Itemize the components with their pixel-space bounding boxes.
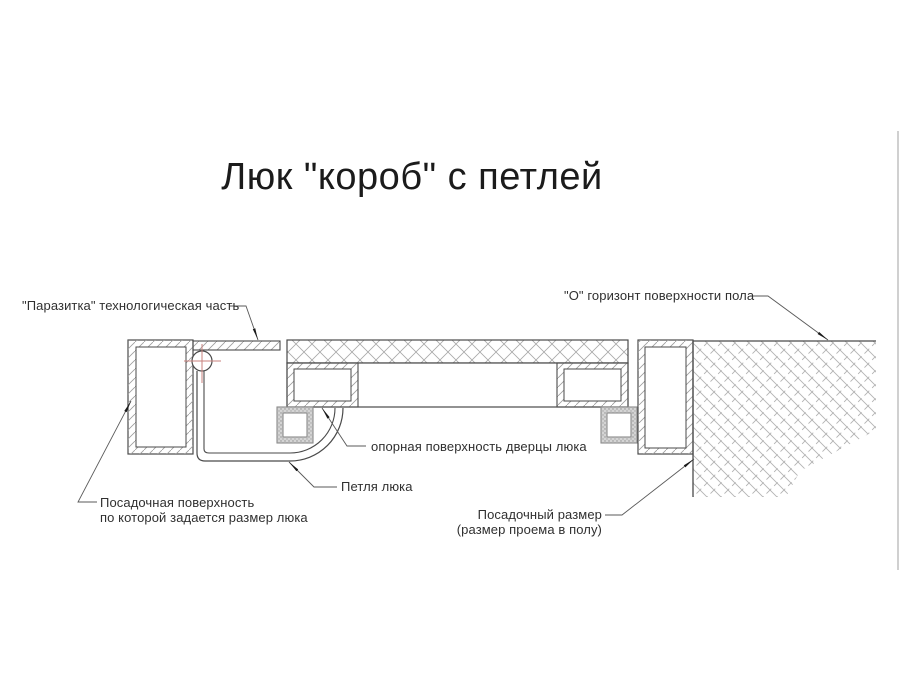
technical-drawing-canvas bbox=[0, 0, 900, 700]
leader-seating-surface bbox=[78, 401, 131, 502]
label-seating-size: Посадочный размер (размер проема в полу) bbox=[432, 507, 602, 537]
right-seal-profile bbox=[601, 407, 637, 443]
label-seating-surface-line1: Посадочная поверхность bbox=[100, 495, 308, 510]
label-support-surface: опорная поверхность дверцы люка bbox=[371, 439, 587, 454]
leader-seating-size bbox=[605, 459, 694, 515]
page-title: Люк "короб" с петлей bbox=[0, 156, 824, 199]
door-left-profile bbox=[287, 363, 358, 407]
label-hinge: Петля люка bbox=[341, 479, 413, 494]
label-seating-surface-line2: по которой задается размер люка bbox=[100, 510, 308, 525]
leader-hinge bbox=[289, 462, 337, 487]
leader-support-surface bbox=[322, 408, 366, 446]
label-seating-size-line1: Посадочный размер bbox=[432, 507, 602, 522]
left-seal-profile bbox=[277, 407, 313, 443]
label-seating-size-line2: (размер проема в полу) bbox=[432, 522, 602, 537]
floor-slab bbox=[693, 341, 876, 497]
door-right-profile bbox=[557, 363, 628, 407]
label-seating-surface: Посадочная поверхность по которой задает… bbox=[100, 495, 308, 525]
hatch-diagram-page: Люк "короб" с петлей "Паразитка" техноло… bbox=[0, 0, 900, 700]
door-top-screed-layer bbox=[287, 340, 628, 363]
label-parasitka: "Паразитка" технологическая часть bbox=[22, 298, 239, 313]
left-frame-profile bbox=[128, 340, 193, 454]
parasitka-strip bbox=[193, 341, 280, 350]
right-frame-profile bbox=[638, 340, 693, 454]
label-floor-horizon: "О" горизонт поверхности пола bbox=[564, 288, 754, 303]
leader-floor-horizon bbox=[750, 296, 828, 340]
